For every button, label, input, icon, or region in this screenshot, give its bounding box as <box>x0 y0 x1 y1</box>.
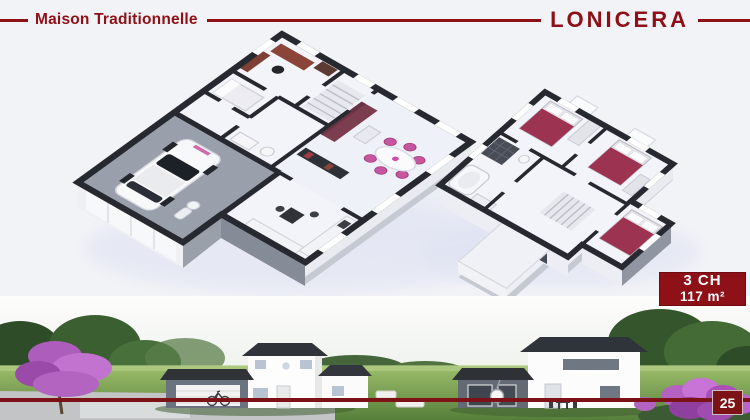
spec-badge: 3 CH 117 m² <box>659 272 746 306</box>
front-door <box>277 386 290 408</box>
garage-roof <box>160 369 254 380</box>
round-window <box>282 362 291 371</box>
sliding-door <box>468 385 492 406</box>
annex-walls <box>322 376 368 408</box>
separator-line <box>0 398 750 402</box>
floor-plans-canvas <box>0 0 750 300</box>
window <box>300 360 312 369</box>
annex-roof <box>452 368 534 380</box>
bedroom-count: 3 CH <box>659 273 746 290</box>
first-floor-plan <box>395 83 723 300</box>
main-roof <box>520 337 648 352</box>
band-window <box>562 358 620 371</box>
page-number-badge: 25 <box>712 390 743 415</box>
window <box>255 360 266 369</box>
window <box>332 386 344 396</box>
exterior-scene <box>0 296 750 420</box>
surface-area: 117 m² <box>659 290 746 305</box>
page-number: 25 <box>720 395 736 411</box>
window <box>253 388 268 398</box>
window <box>600 386 620 398</box>
